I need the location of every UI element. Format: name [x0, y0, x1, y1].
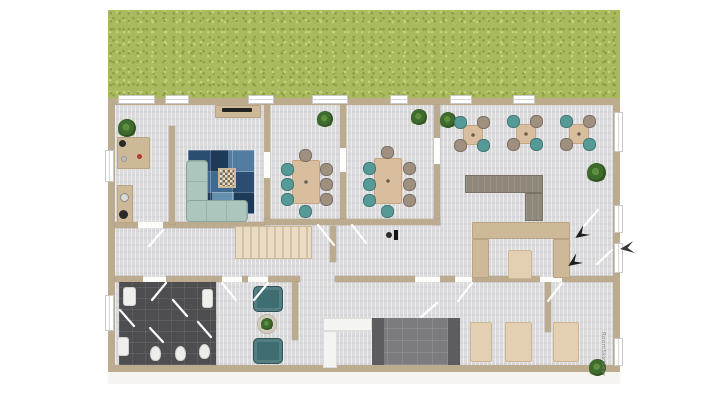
wall-nook-right	[292, 282, 298, 340]
window	[614, 338, 623, 366]
wall-lounge-stub	[169, 126, 175, 224]
wall-vestibule	[545, 282, 551, 332]
window	[390, 95, 408, 104]
staircase	[235, 226, 312, 259]
armchair	[253, 338, 283, 364]
door-opening	[222, 277, 242, 282]
plant-icon	[118, 119, 136, 137]
window	[248, 95, 274, 104]
wall-hall	[440, 276, 455, 282]
white-l-counter	[323, 331, 337, 368]
door-opening	[138, 222, 163, 228]
door-opening	[248, 277, 268, 282]
chair	[560, 138, 573, 151]
sink-icon	[117, 337, 129, 356]
door-opening	[434, 138, 440, 164]
table	[505, 322, 532, 362]
plant-icon	[411, 109, 427, 125]
wall-hall	[335, 276, 415, 282]
window	[614, 112, 623, 152]
chair	[381, 146, 394, 159]
booth-seating	[472, 239, 489, 278]
sink-icon	[202, 289, 213, 308]
chair	[583, 138, 596, 151]
chair	[507, 115, 520, 128]
armchair	[253, 286, 283, 312]
table	[470, 322, 492, 362]
wall-under-meeting-rooms	[264, 219, 440, 225]
window	[105, 150, 114, 182]
entrance-door	[614, 205, 623, 233]
conference-table	[292, 160, 320, 204]
corner-sofa	[186, 200, 248, 222]
window	[312, 95, 348, 104]
chair	[363, 178, 376, 191]
door-opening	[455, 277, 472, 282]
red-flower-icon	[137, 154, 142, 159]
chair	[281, 193, 294, 206]
chair	[530, 138, 543, 151]
chair	[320, 163, 333, 176]
chair	[363, 194, 376, 207]
plant-icon	[317, 111, 333, 127]
watermark-text: RoomSketcher	[600, 332, 606, 377]
sink-icon	[120, 193, 129, 202]
chair	[281, 178, 294, 191]
coffee-table	[218, 168, 236, 188]
door-opening	[415, 277, 440, 282]
floor-lamp-icon	[394, 230, 398, 240]
chair	[403, 162, 416, 175]
conference-table	[374, 158, 402, 204]
window	[105, 295, 114, 331]
window	[450, 95, 472, 104]
chair	[507, 138, 520, 151]
door-opening	[340, 148, 346, 172]
chair	[560, 115, 573, 128]
plant-icon	[261, 318, 273, 330]
door-opening	[264, 152, 270, 178]
chair	[281, 163, 294, 176]
chair	[454, 116, 467, 129]
chair	[477, 139, 490, 152]
booth-table	[508, 250, 532, 279]
kettle-icon	[119, 140, 126, 147]
window	[118, 95, 155, 104]
toilet-icon	[175, 346, 186, 361]
window	[513, 95, 535, 104]
chair	[454, 139, 467, 152]
booth-seating	[472, 222, 570, 239]
table	[553, 322, 579, 362]
bar-pillar	[448, 318, 460, 365]
window	[165, 95, 189, 104]
chair	[403, 178, 416, 191]
chair	[583, 115, 596, 128]
chair	[299, 149, 312, 162]
toilet-icon	[199, 344, 210, 359]
wall-meeting2-cafe	[434, 105, 440, 225]
sink-icon	[123, 287, 136, 306]
floor-plan-scene: RoomSketcher	[0, 0, 711, 400]
chair	[530, 115, 543, 128]
wall-stair-stub	[330, 226, 336, 262]
chair	[320, 178, 333, 191]
entrance-door	[614, 243, 623, 273]
plant-icon	[587, 163, 606, 182]
toilet-icon	[150, 346, 161, 361]
chair	[320, 193, 333, 206]
chair	[363, 162, 376, 175]
stove-icon	[119, 210, 128, 219]
tv-icon	[222, 108, 252, 112]
chair	[403, 194, 416, 207]
bar-tiled-floor	[372, 318, 460, 365]
floor-lamp-icon	[386, 232, 392, 238]
bar-pillar	[372, 318, 384, 365]
chair	[477, 116, 490, 129]
l-shaped-bench	[525, 193, 543, 221]
plate-icon	[121, 156, 127, 162]
booth-seating	[553, 239, 570, 278]
chair	[381, 205, 394, 218]
l-shaped-bench	[465, 175, 543, 193]
terrace-strip	[108, 372, 620, 384]
white-l-counter	[323, 318, 372, 331]
grass-lawn	[108, 10, 620, 99]
chair	[299, 205, 312, 218]
